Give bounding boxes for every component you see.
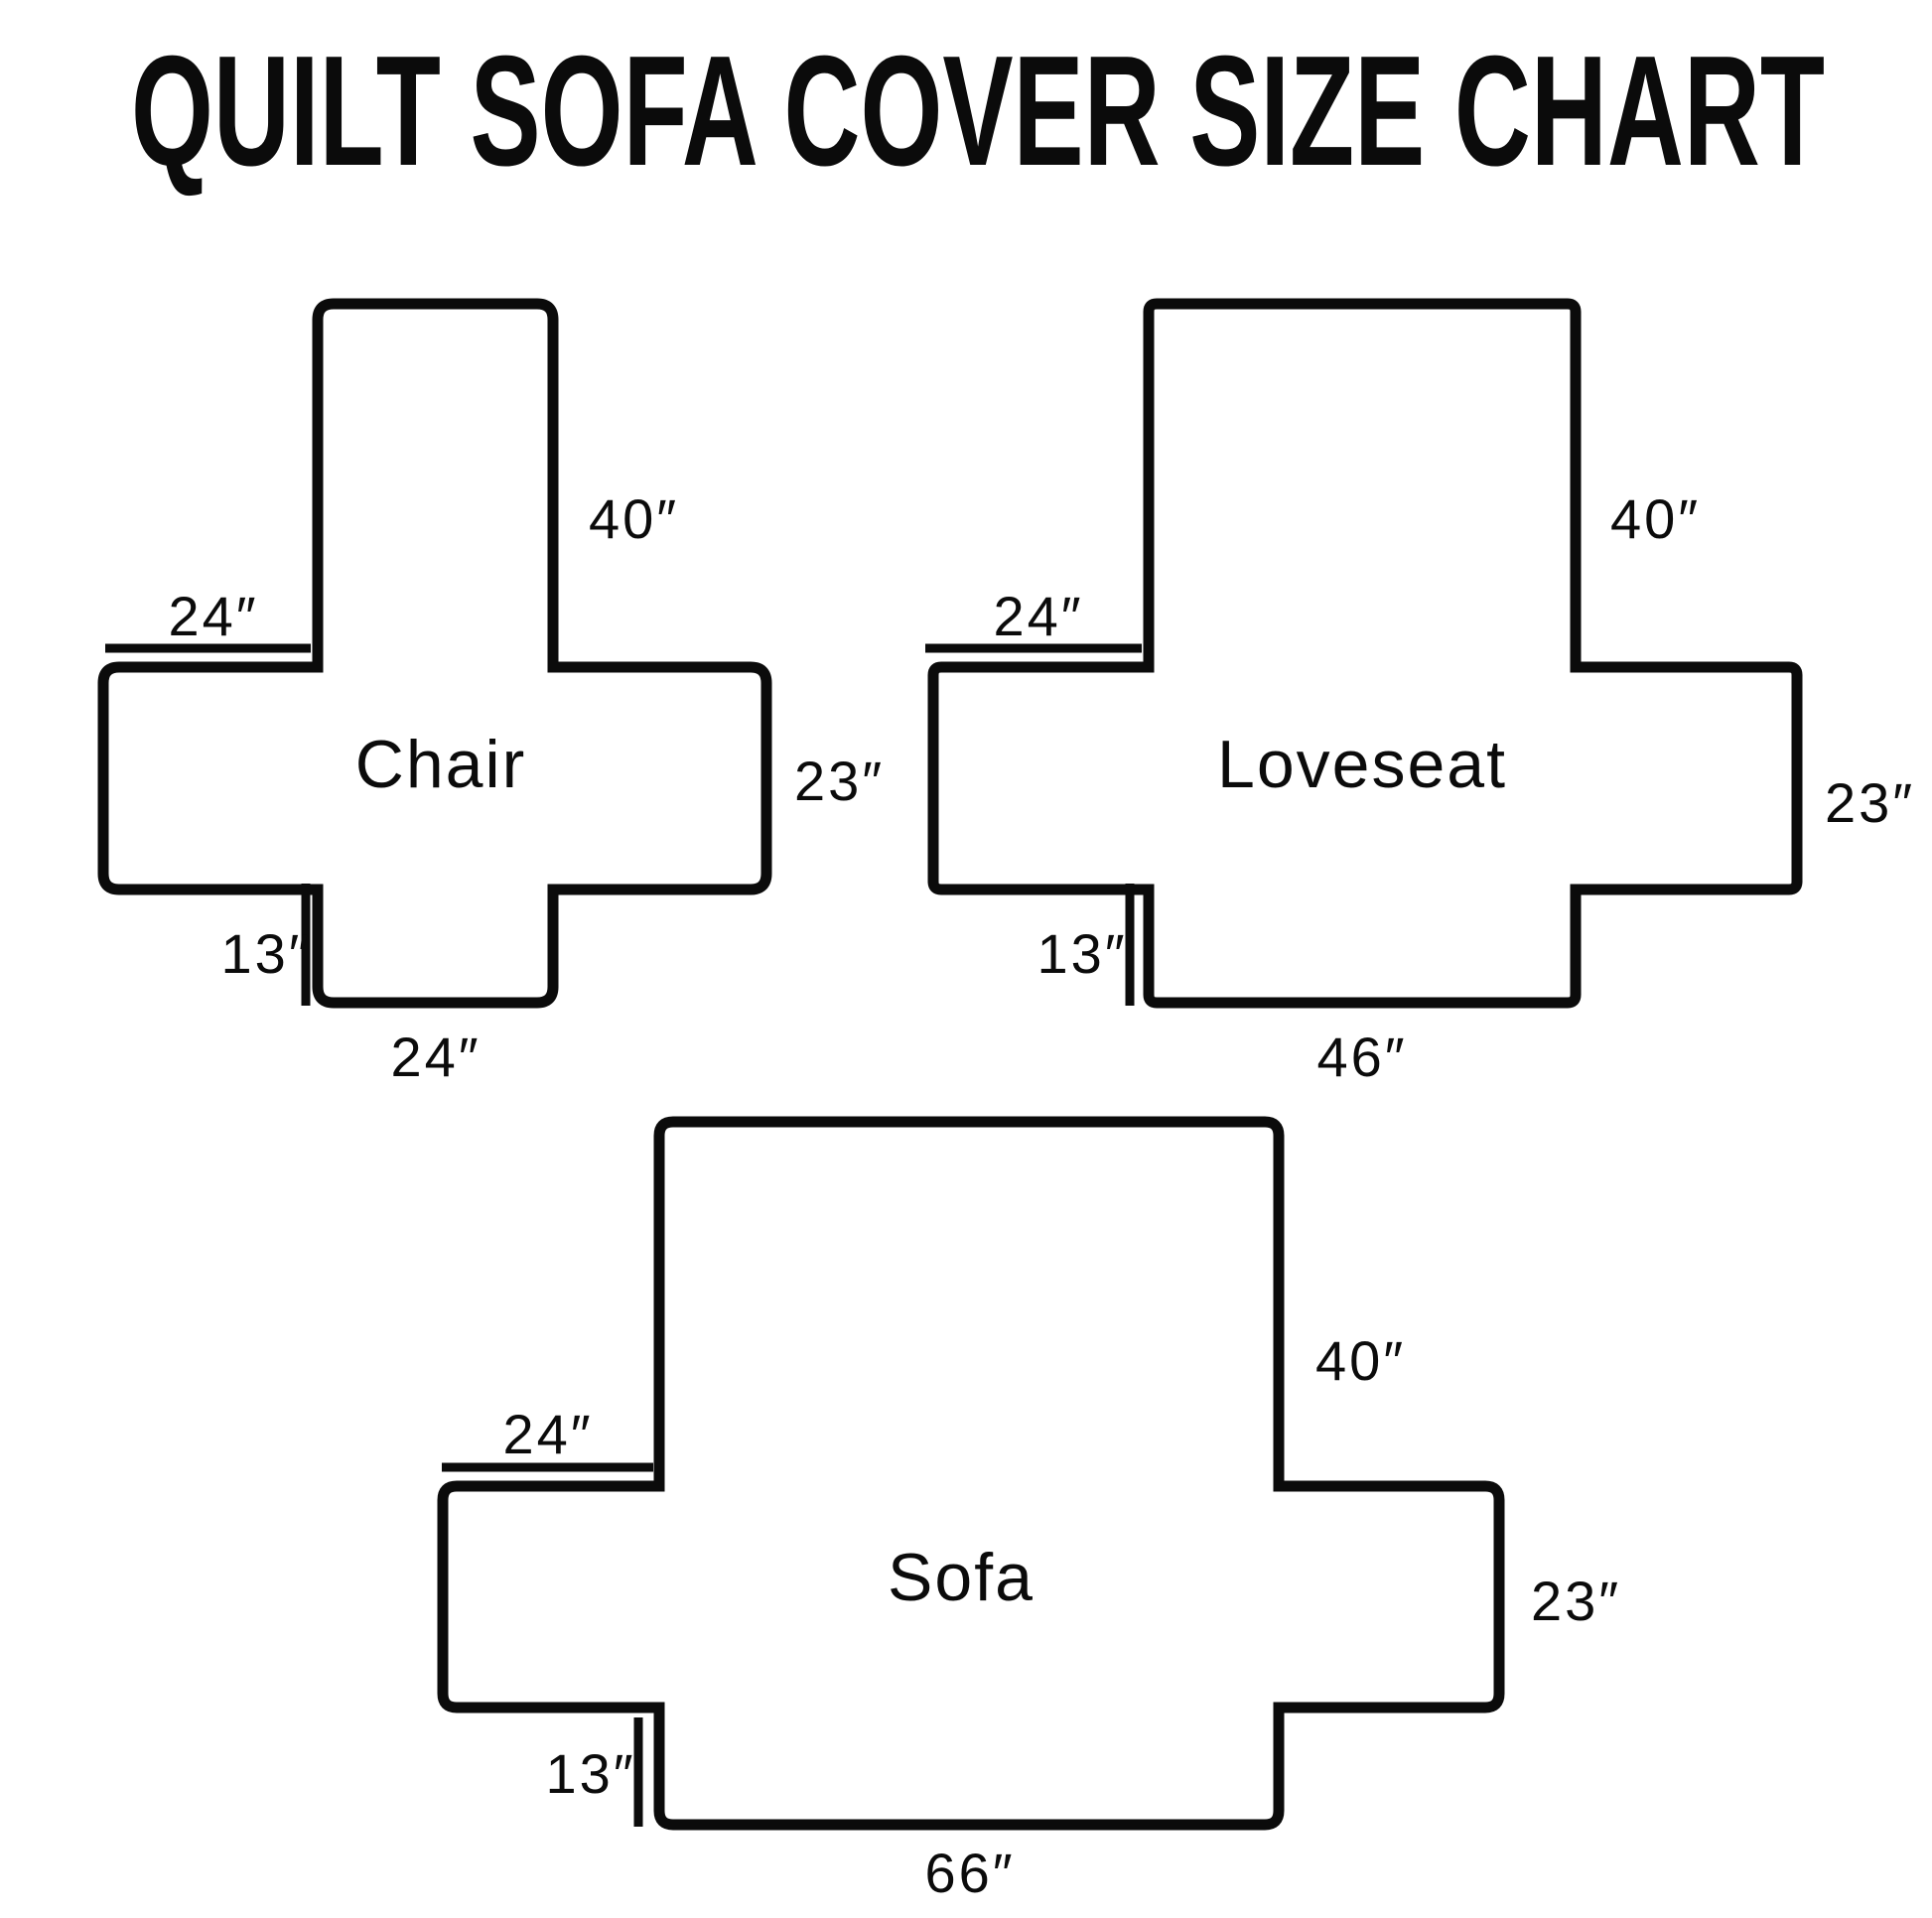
page-title: QUILT SOFA COVER SIZE CHART [131, 24, 1825, 199]
sofa-bottom-width-label: 66″ [924, 1842, 1015, 1904]
loveseat-bottom-width-label: 46″ [1316, 1026, 1407, 1088]
sofa-back-height-label: 40″ [1315, 1329, 1406, 1392]
sofa-arm-width-label: 24″ [502, 1403, 593, 1465]
loveseat-arm-width-label: 24″ [993, 585, 1083, 647]
chair-back-height-label: 40″ [589, 487, 679, 550]
chair-arm-width-label: 24″ [168, 585, 258, 647]
chair-side-height-label: 23″ [794, 750, 885, 812]
loveseat-diagram: 40″ 24″ Loveseat 23″ 13″ 46″ [925, 304, 1915, 1088]
chair-diagram: 40″ 24″ Chair 23″ 13″ 24″ [103, 304, 885, 1088]
loveseat-cover-outline [933, 304, 1797, 1003]
chair-bottom-width-label: 24″ [390, 1026, 481, 1088]
size-chart-drawing: QUILT SOFA COVER SIZE CHART 40″ 24″ Chai… [0, 0, 1932, 1918]
loveseat-skirt-height-label: 13″ [1036, 922, 1127, 985]
chair-name-label: Chair [355, 727, 527, 802]
sofa-side-height-label: 23″ [1531, 1570, 1621, 1632]
sofa-name-label: Sofa [888, 1540, 1035, 1615]
sofa-skirt-height-label: 13″ [545, 1742, 635, 1805]
sofa-diagram: 40″ 24″ Sofa 23″ 13″ 66″ [442, 1122, 1621, 1904]
chair-cover-outline [103, 304, 766, 1003]
loveseat-side-height-label: 23″ [1825, 771, 1915, 834]
loveseat-back-height-label: 40″ [1610, 487, 1701, 550]
chair-skirt-height-label: 13″ [220, 922, 311, 985]
quilt-sofa-cover-size-chart: QUILT SOFA COVER SIZE CHART 40″ 24″ Chai… [0, 0, 1932, 1918]
loveseat-name-label: Loveseat [1217, 727, 1507, 802]
sofa-cover-outline [443, 1122, 1499, 1825]
